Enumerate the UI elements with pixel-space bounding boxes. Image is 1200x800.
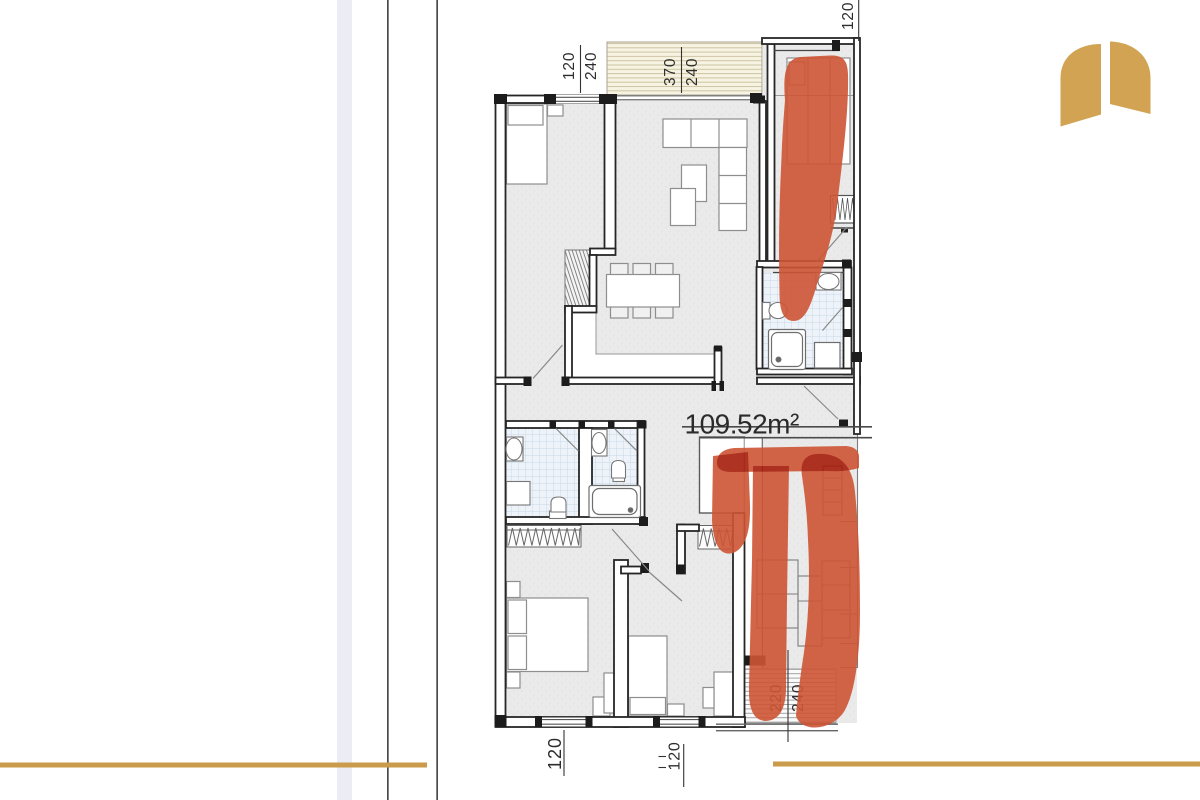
svg-text:370: 370 <box>662 58 679 86</box>
svg-text:120: 120 <box>667 741 684 770</box>
svg-text:240: 240 <box>684 58 701 86</box>
svg-text:120: 120 <box>561 52 578 80</box>
svg-text:109.52m²: 109.52m² <box>685 409 799 440</box>
svg-text:120: 120 <box>545 737 565 770</box>
svg-text:120: 120 <box>840 2 857 30</box>
svg-text:240: 240 <box>583 52 600 80</box>
